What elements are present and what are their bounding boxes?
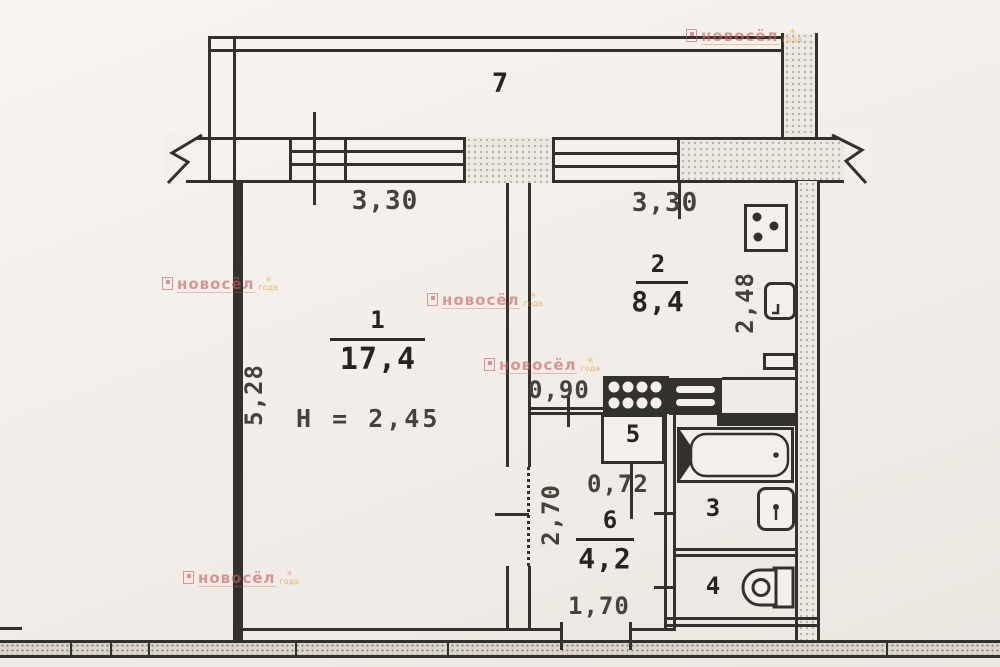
dimension-living-depth: 5,28 xyxy=(240,364,268,426)
vent-shaft-round-icon xyxy=(603,376,669,414)
dimension-window-left: 3,30 xyxy=(330,186,440,216)
bottom-wall-joint-5 xyxy=(447,640,449,658)
watermark-logo-icon xyxy=(183,571,194,584)
window-right-glass-line2 xyxy=(555,165,677,168)
bottom-wall-joint-3 xyxy=(148,640,150,658)
wc-bottom-wall xyxy=(664,617,820,627)
facade-pier-middle xyxy=(463,137,555,183)
window-left-jamb xyxy=(289,137,292,183)
right-outer-wall xyxy=(795,181,820,650)
window-left-glass-line2 xyxy=(292,163,464,166)
facade-pier-right xyxy=(677,140,844,180)
kitchen-room-area: 8,4 xyxy=(626,285,690,318)
stove-icon xyxy=(744,204,788,252)
hall-dim-tick-upper xyxy=(654,512,676,515)
bath-room-number: 3 xyxy=(698,494,728,522)
wc-room-number: 4 xyxy=(698,572,728,600)
ceiling-height-note: H = 2,45 xyxy=(296,404,440,433)
watermark-middle-2: новосёл ✳года xyxy=(484,357,600,374)
hall-room-area: 4,2 xyxy=(572,542,638,575)
balcony-right-wall xyxy=(781,33,818,137)
window-right-glass-line1 xyxy=(555,152,677,155)
hall-dim-tick-lower xyxy=(654,586,676,589)
wash-basin-icon xyxy=(757,487,795,531)
wall-break-right-icon xyxy=(828,133,870,185)
watermark-left: новосёл ✳года xyxy=(162,276,278,293)
watermark-accent: ✳года xyxy=(259,276,279,292)
watermark-accent: ✳года xyxy=(581,357,601,373)
living-room-area: 17,4 xyxy=(328,342,428,377)
toilet-icon xyxy=(736,565,795,610)
partition-living-kitchen xyxy=(506,183,531,467)
partition-living-hall-lower xyxy=(506,566,531,629)
partition-dim-tick xyxy=(495,513,529,516)
wall-break-left-icon xyxy=(164,133,206,185)
kitchen-counter-line xyxy=(722,377,795,380)
watermark-logo-icon xyxy=(484,358,495,371)
sink-icon xyxy=(764,282,796,320)
duct-box xyxy=(763,353,796,370)
bottom-building-wall xyxy=(0,640,1000,658)
bottom-wall-joint-6 xyxy=(886,640,888,658)
bath-top-wall xyxy=(717,413,795,426)
kitchen-fraction-rule xyxy=(636,281,688,284)
hall-fraction-rule xyxy=(576,538,634,541)
bathtub-icon xyxy=(677,427,794,483)
bottom-wall-joint-1 xyxy=(70,640,72,658)
dimension-tick-window-left xyxy=(313,112,316,205)
window-left-glass-line1 xyxy=(292,150,464,153)
dimension-closet-width: 0,72 xyxy=(587,470,649,498)
window-left-mullion xyxy=(344,140,347,180)
vent-shaft-lined-icon xyxy=(669,378,722,415)
bottom-wall-joint-4 xyxy=(295,640,297,658)
balcony-room-number: 7 xyxy=(480,68,520,99)
bottom-wall-notch xyxy=(0,627,22,630)
floor-plan: 7 3,30 3,30 xyxy=(0,0,1000,667)
bath-wc-divider xyxy=(676,548,795,557)
bottom-wall-joint-2 xyxy=(110,640,112,658)
closet-room-number: 5 xyxy=(615,420,651,448)
watermark-logo-icon xyxy=(162,277,173,290)
kitchen-room-number: 2 xyxy=(628,250,688,278)
balcony-left-wall xyxy=(208,36,236,182)
dimension-hall-depth: 2,70 xyxy=(537,484,565,546)
dimension-entry-width: 1,70 xyxy=(568,592,630,620)
watermark-logo-icon xyxy=(427,293,438,306)
hall-room-number: 6 xyxy=(585,506,635,534)
living-room-fraction-rule xyxy=(330,338,425,341)
living-hall-door xyxy=(527,467,530,566)
dimension-kitchen-door: 0,90 xyxy=(528,376,590,404)
hall-bath-wall xyxy=(664,413,676,629)
watermark-accent: ✳года xyxy=(280,570,300,586)
dimension-kitchen-depth: 2,48 xyxy=(731,272,759,334)
balcony-top-wall xyxy=(208,36,818,52)
entrance-door-jamb-right xyxy=(629,622,632,650)
living-room-number: 1 xyxy=(345,306,410,334)
entrance-door-jamb-left xyxy=(560,622,563,650)
dimension-window-right: 3,30 xyxy=(615,188,715,218)
